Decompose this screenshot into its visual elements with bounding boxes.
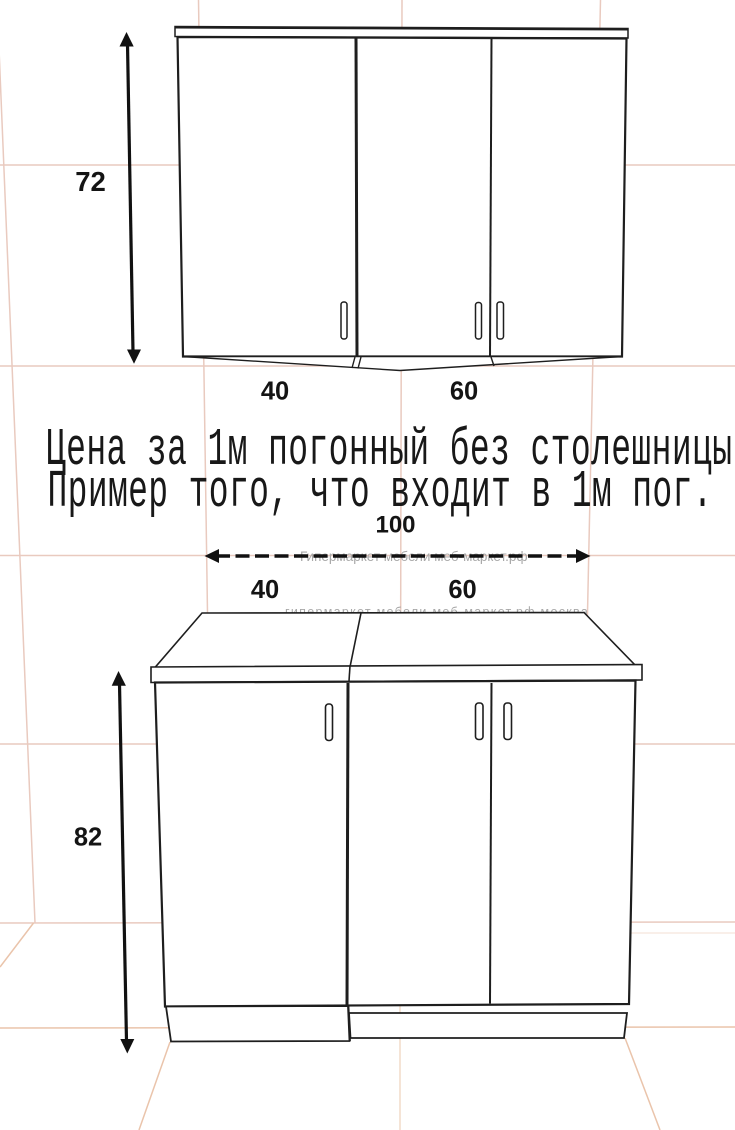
svg-text:100: 100 xyxy=(375,512,415,539)
svg-text:72: 72 xyxy=(75,166,106,197)
svg-text:82: 82 xyxy=(74,824,102,852)
svg-text:60: 60 xyxy=(450,378,478,406)
svg-text:60: 60 xyxy=(448,576,476,604)
svg-text:40: 40 xyxy=(261,378,289,406)
svg-text:40: 40 xyxy=(251,576,279,604)
